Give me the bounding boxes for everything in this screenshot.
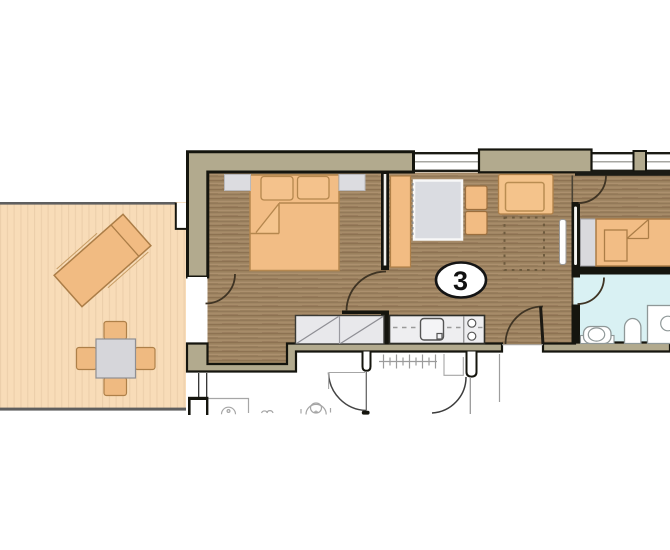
- svg-text:3: 3: [453, 266, 468, 296]
